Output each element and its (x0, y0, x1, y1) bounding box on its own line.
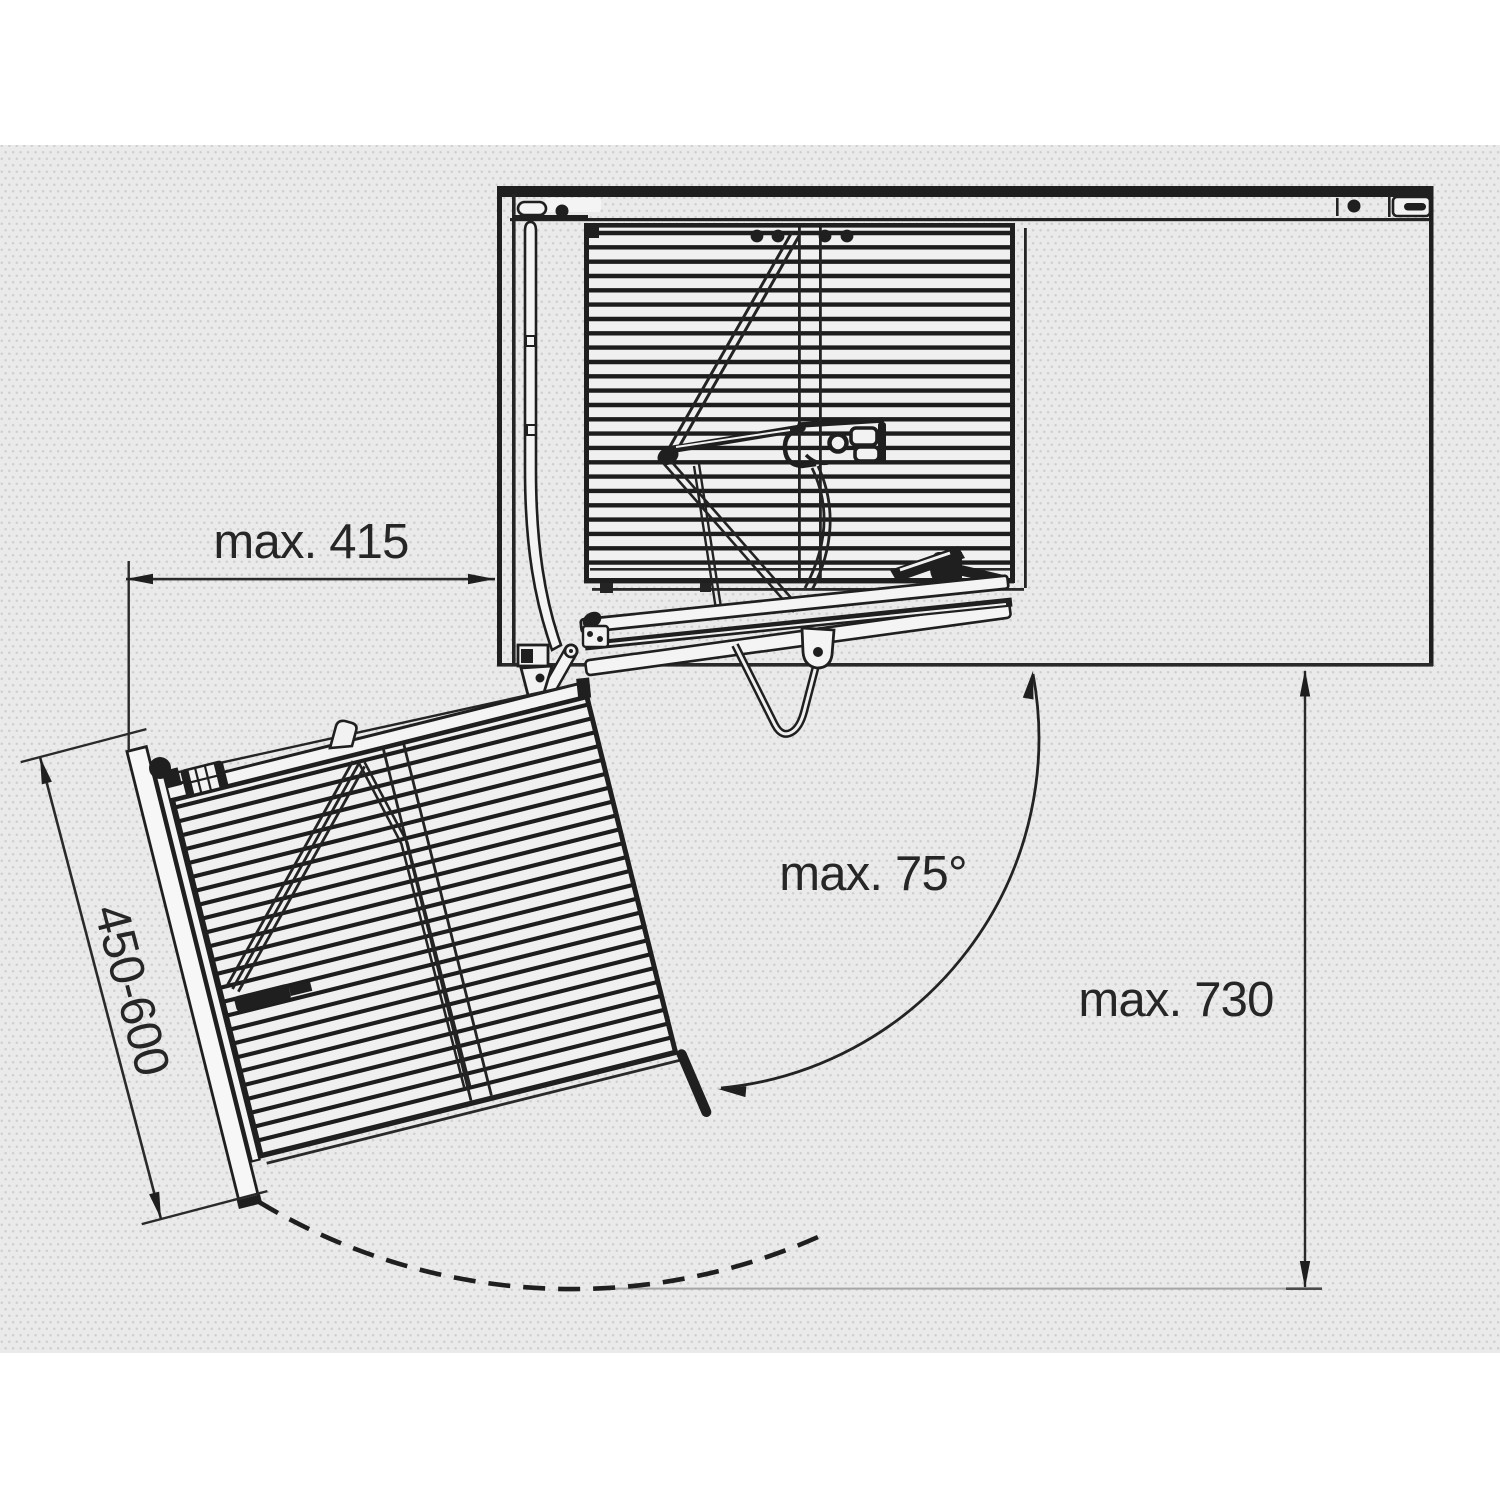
svg-text:max. 730: max. 730 (1078, 973, 1273, 1027)
svg-text:max. 415: max. 415 (213, 515, 408, 569)
svg-text:max. 75°: max. 75° (779, 847, 967, 901)
